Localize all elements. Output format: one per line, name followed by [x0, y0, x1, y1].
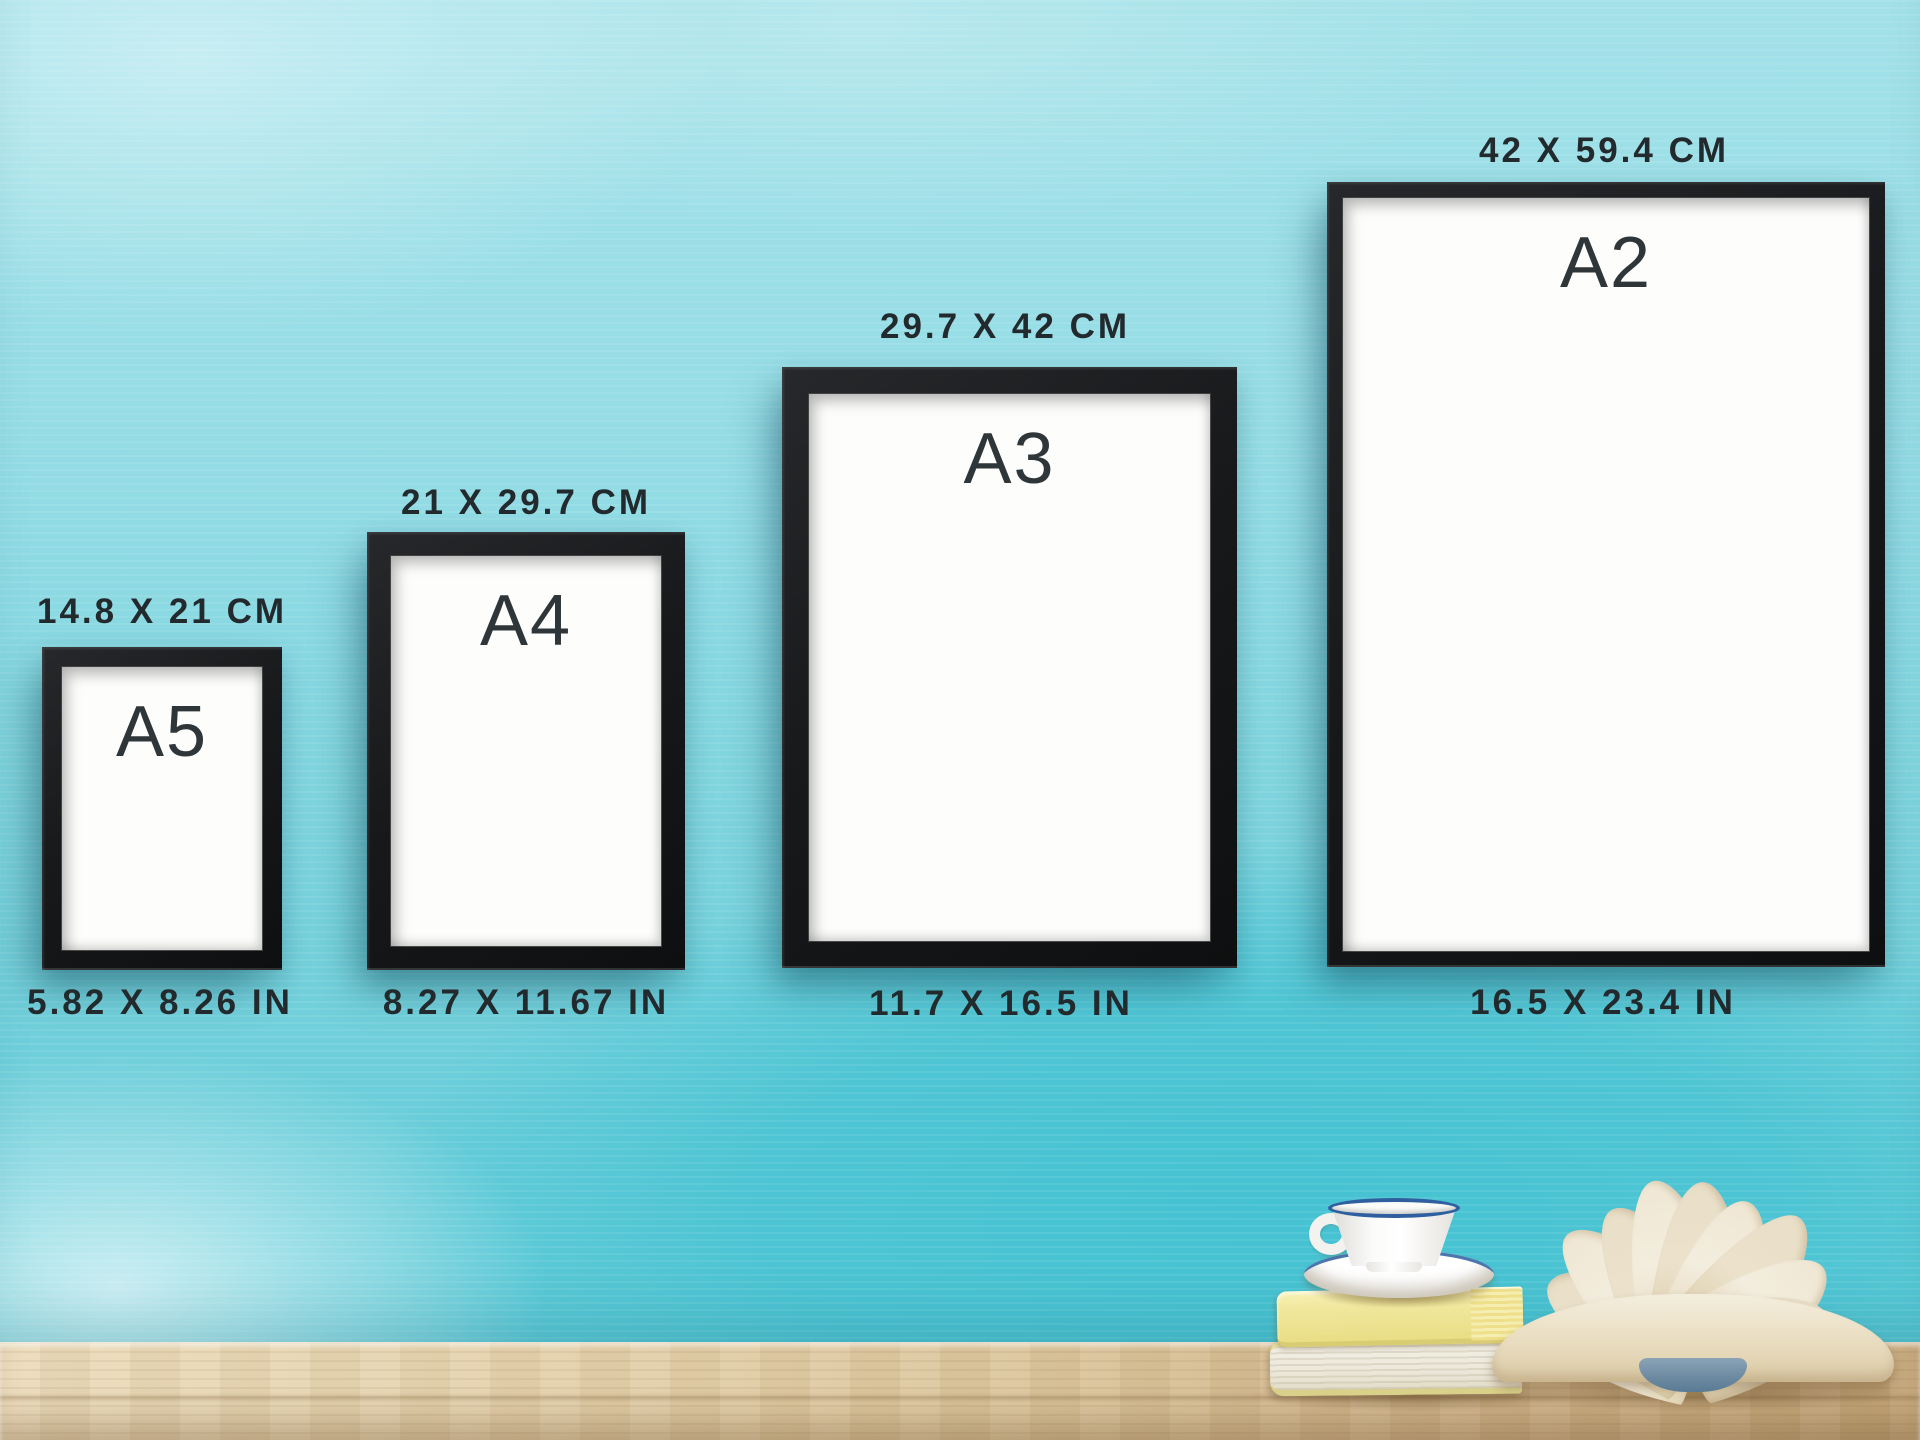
a3-cm-dimension-label: 29.7 X 42 CM — [795, 307, 1215, 347]
frame-a3-paper: A3 — [808, 393, 1211, 942]
frame-a5: A5 — [42, 647, 282, 970]
frame-a4-paper: A4 — [390, 555, 662, 947]
a4-inch-dimension-label: 8.27 X 11.67 IN — [316, 983, 736, 1023]
frame-a3-size-letter: A3 — [963, 423, 1055, 495]
coffee-cup-foot — [1366, 1262, 1422, 1272]
frame-a2-paper: A2 — [1342, 197, 1870, 952]
a4-cm-dimension-label: 21 X 29.7 CM — [316, 483, 736, 523]
frame-a4-size-letter: A4 — [480, 585, 572, 657]
a5-inch-dimension-label: 5.82 X 8.26 IN — [0, 983, 370, 1023]
a2-inch-dimension-label: 16.5 X 23.4 IN — [1393, 983, 1813, 1023]
coffee-cup-blue-rim — [1328, 1198, 1460, 1218]
frame-a4: A4 — [367, 532, 685, 970]
poster-size-comparison-scene: 14.8 X 21 CM A5 5.82 X 8.26 IN 21 X 29.7… — [0, 0, 1920, 1440]
a3-inch-dimension-label: 11.7 X 16.5 IN — [791, 984, 1211, 1024]
open-book — [1488, 1168, 1898, 1398]
frame-a3: A3 — [782, 367, 1237, 968]
frame-a2: A2 — [1327, 182, 1885, 967]
frame-a5-size-letter: A5 — [116, 696, 208, 768]
frame-a5-paper: A5 — [61, 666, 263, 951]
frame-a2-size-letter: A2 — [1560, 227, 1652, 299]
a2-cm-dimension-label: 42 X 59.4 CM — [1394, 131, 1814, 171]
a5-cm-dimension-label: 14.8 X 21 CM — [0, 592, 372, 632]
